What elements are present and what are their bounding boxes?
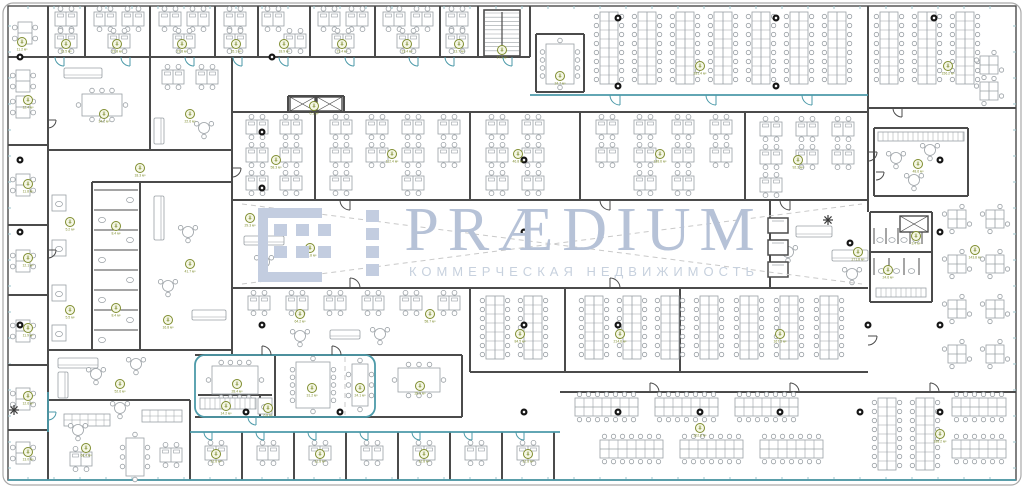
bench-desk-row (814, 296, 844, 359)
bench-desk-row (760, 434, 823, 464)
door-arc (868, 336, 877, 345)
fixture (52, 240, 66, 256)
bench-desk-row (579, 296, 609, 359)
room-marker: 18.3 м² (134, 164, 146, 178)
door-arc (233, 57, 242, 66)
desk-cluster (55, 6, 77, 31)
desk-cluster (486, 114, 508, 139)
room-area-label: 12.8 м² (210, 460, 222, 464)
room-area-label: 24.1 м² (354, 394, 366, 398)
desk-cluster (324, 290, 346, 315)
desk-cluster (246, 114, 268, 139)
room-area-label: 12.8 м² (522, 460, 534, 464)
bench-desk-row (734, 296, 764, 359)
desk-cluster (248, 290, 270, 315)
sofa (64, 68, 102, 78)
desk-cluster (596, 142, 618, 167)
desk-cluster (980, 204, 1009, 233)
round-table (68, 423, 87, 440)
round-table (158, 279, 177, 296)
room-marker: 281.4 м² (694, 62, 708, 76)
room-area-label: 11.9 м² (23, 334, 35, 338)
room-area-label: 112.4 м² (386, 160, 400, 164)
bench-desk-row (632, 12, 662, 84)
desk-cluster (832, 144, 854, 169)
floorplan-svg: 11.2 м²13.5 м²23.8 м²23.8 м²15.1 м²18.9 … (0, 0, 1024, 488)
bench-desk-row (655, 392, 718, 422)
desk-cluster (465, 440, 487, 465)
floorplan-screenshot: 11.2 м²13.5 м²23.8 м²23.8 м²15.1 м²18.9 … (0, 0, 1024, 488)
room-area-label: 8.4 м² (111, 314, 121, 318)
bench-desk-row (708, 12, 738, 84)
fixture (52, 195, 66, 211)
desk-cluster (318, 6, 340, 31)
desk-cluster (832, 116, 854, 141)
room-area-label: 6.8 м² (263, 414, 273, 418)
desk-cluster (10, 70, 35, 92)
desk-cluster (383, 6, 405, 31)
room-area-label: 28.4 м² (231, 390, 243, 394)
desk-cluster (257, 440, 279, 465)
room-area-label: 13.7 м² (453, 50, 465, 54)
room-marker: 6.1 м² (309, 102, 319, 116)
bench-desk-row (480, 296, 510, 359)
room-marker: 5.2 м² (65, 218, 75, 232)
door-arc (802, 95, 812, 105)
desk-cluster (942, 339, 971, 368)
door-arc (256, 432, 264, 440)
room-area-label: 41.7 м² (184, 270, 196, 274)
room-marker: 29.3 м² (244, 214, 256, 228)
room-area-label: 23.8 м² (111, 50, 123, 54)
desk-cluster (366, 114, 388, 139)
door-arc (930, 383, 939, 392)
room-area-label: 18.3 м² (134, 174, 146, 178)
desk-cluster (438, 114, 460, 139)
room-marker: 52.6 м² (114, 380, 126, 394)
door-arc (308, 432, 316, 440)
desk-cluster (980, 249, 1009, 278)
room-area-label: 24.7 м² (554, 82, 566, 86)
door-arc (279, 57, 288, 66)
door-arc (790, 383, 799, 392)
fixture (52, 285, 66, 301)
desk-cluster (187, 6, 209, 31)
round-table (842, 267, 861, 284)
room-area-label: 28.9 м² (414, 392, 426, 396)
room-area-label: 18.9 м² (278, 50, 290, 54)
sofa (330, 330, 360, 339)
door-arc (780, 200, 790, 210)
door-arc (332, 346, 341, 355)
sofa (154, 196, 164, 240)
bench-desk-row (735, 392, 798, 422)
room-area-label: 13.5 м² (60, 50, 72, 54)
sofa (154, 118, 164, 144)
bench-desk-row (872, 398, 902, 470)
room-area-label: 12.8 м² (314, 460, 326, 464)
round-table (194, 121, 213, 138)
sofa (58, 372, 68, 398)
room-area-label: 23.4 м² (401, 50, 413, 54)
door-arc (340, 200, 350, 210)
door-arc (248, 417, 256, 425)
desk-cluster (634, 114, 656, 139)
room-area-label: 16.8 м² (162, 326, 174, 330)
room-area-label: 12.6 м² (22, 402, 34, 406)
desk-cluster (596, 114, 618, 139)
desk-cluster (280, 114, 302, 139)
door-arc (893, 108, 902, 117)
room-area-label: 48.6 м² (912, 170, 924, 174)
room-marker: 24.6 м² (882, 266, 894, 280)
desk-cluster (366, 142, 388, 167)
desk-cluster (672, 142, 694, 167)
round-table (86, 367, 105, 384)
desk-cluster (122, 6, 144, 31)
bench-desk-row (952, 434, 1006, 464)
sofa (58, 358, 98, 368)
room-area-label: 34.2 м² (98, 120, 110, 124)
desk-cluster (402, 114, 424, 139)
room-area-label: 84.5 м² (514, 340, 526, 344)
round-table (290, 329, 309, 346)
desk-cluster (224, 6, 246, 31)
room-area-label: 156.2 м² (942, 72, 956, 76)
wc-stalls (94, 190, 138, 343)
round-table (886, 151, 905, 168)
desk-cluster (760, 116, 782, 141)
counter (878, 132, 964, 141)
round-table (178, 225, 197, 242)
room-area-label: 271.8 м² (852, 258, 866, 262)
room-area-label: 281.4 м² (694, 72, 708, 76)
bench-desk-row (575, 392, 638, 422)
door-arc (464, 432, 472, 440)
room-marker: 112.4 м² (386, 150, 400, 164)
watermark: PRÆDIUM КОММЕРЧЕСКАЯ НЕДВИЖИМОСТЬ (258, 196, 764, 282)
bench-desk-row (594, 12, 624, 84)
desk-cluster (634, 142, 656, 167)
bench-desk-row (822, 12, 852, 84)
desk-cluster (486, 142, 508, 167)
desk-cluster (280, 170, 302, 195)
sofa (192, 310, 226, 320)
room-area-label: 6.1 м² (309, 112, 319, 116)
room-area-label: 22.6 м² (184, 120, 196, 124)
bench-desk-row (694, 296, 724, 359)
sofa (796, 226, 832, 237)
plant (9, 405, 19, 415)
round-table (110, 401, 129, 418)
desk-cluster (796, 116, 818, 141)
desk-cluster (522, 170, 544, 195)
desk-cluster (402, 170, 424, 195)
room-area-label: 188.2 м² (934, 440, 948, 444)
room-marker: 22.6 м² (184, 110, 196, 124)
room-area-label: 11.8 м² (23, 190, 35, 194)
room-area-label: 52.6 м² (114, 390, 126, 394)
room-marker: 6.8 м² (263, 404, 273, 418)
phone-booth (768, 218, 788, 233)
bench-desk-row (746, 12, 776, 84)
plant (823, 215, 833, 225)
room-marker: 8.4 м² (111, 222, 121, 236)
room-area-label: 302.6 м² (694, 434, 708, 438)
desk-cluster (486, 170, 508, 195)
room-area-label: 5.5 м² (65, 316, 75, 320)
room-area-label: 14.2 м² (220, 412, 232, 416)
room-area-label: 46.8 м² (512, 160, 524, 164)
door-arc (48, 120, 56, 128)
elevator-shaft (317, 97, 342, 111)
door-arc (706, 95, 716, 105)
desk-cluster (94, 6, 116, 31)
door-arc (412, 432, 420, 440)
desk-cluster (980, 294, 1009, 323)
room-area-label: 5.2 м² (65, 228, 75, 232)
elevator-shaft (900, 216, 928, 232)
door-arc (350, 278, 360, 288)
phone-booth (768, 240, 788, 255)
room-area-label: 167.3 м² (774, 340, 788, 344)
watermark-title: PRÆDIUM (404, 196, 763, 264)
room-area-label: 12.8 м² (418, 460, 430, 464)
door-arc (868, 152, 877, 161)
door-arc (360, 432, 368, 440)
desk-cluster (196, 64, 218, 89)
door-arc (121, 57, 130, 66)
desk-cluster (160, 442, 182, 467)
room-area-label: 143.8 м² (969, 256, 983, 260)
room-area-label: 64.2 м² (294, 320, 306, 324)
desk-cluster (446, 6, 468, 31)
bench-desk-row (680, 434, 743, 464)
room-marker: 68.4 м² (80, 444, 92, 458)
bench-desk-row (600, 434, 663, 464)
desk-cluster (438, 290, 460, 315)
desk-cluster (330, 142, 352, 167)
door-arc (55, 57, 64, 66)
desk-cluster (760, 172, 782, 197)
desk-cluster (162, 64, 184, 89)
wc-stalls (874, 258, 919, 275)
room-marker: 58.7 м² (424, 310, 436, 324)
room-marker: 3.4 м² (911, 232, 921, 246)
room-area-label: 24.6 м² (882, 276, 894, 280)
counter (876, 288, 926, 297)
desk-cluster (710, 114, 732, 139)
room-area-label: 8.4 м² (111, 232, 121, 236)
desk-cluster (402, 142, 424, 167)
door-arc (650, 383, 659, 392)
door-arc (409, 57, 418, 66)
desk-cluster (280, 142, 302, 167)
door-arc (610, 95, 620, 105)
phone-booth (768, 262, 788, 277)
room-marker: 41.7 м² (184, 260, 196, 274)
bench-desk-row (912, 12, 942, 84)
bench-desk-row (950, 12, 980, 84)
desk-cluster (942, 204, 971, 233)
room-area-label: 12.1 м² (22, 264, 34, 268)
desk-cluster (672, 170, 694, 195)
desk-cluster (400, 290, 422, 315)
desk-cluster (246, 170, 268, 195)
room-area-label: 138.6 м² (654, 160, 668, 164)
room-marker: 8.4 м² (111, 304, 121, 318)
bench-desk-row (952, 392, 1006, 422)
room-marker: 302.6 м² (694, 424, 708, 438)
room-area-label: 58.7 м² (424, 320, 436, 324)
room-marker: 143.8 м² (969, 246, 983, 260)
door-arc (876, 172, 884, 180)
round-table (904, 173, 923, 190)
room-area-label: 68.4 м² (80, 454, 92, 458)
room-marker: 48.6 м² (912, 160, 924, 174)
door-arc (516, 432, 524, 440)
desk-cluster (522, 142, 544, 167)
room-area-label: 214.6 м² (614, 340, 628, 344)
bench-desk-row (874, 12, 904, 84)
room-area-label: 15.1 м² (230, 50, 242, 54)
room-area-label: 23.8 м² (176, 50, 188, 54)
bench-desk-row (617, 296, 647, 359)
room-area-label: 31.2 м² (306, 394, 318, 398)
desk-cluster (362, 290, 384, 315)
door-arc (232, 168, 241, 177)
desk-cluster (942, 294, 971, 323)
door-arc (204, 432, 212, 440)
room-area-label: 23.4 м² (336, 50, 348, 54)
cabinet (142, 410, 182, 422)
desk-cluster (710, 142, 732, 167)
desk-cluster (522, 114, 544, 139)
desk-cluster (760, 144, 782, 169)
desk-cluster (438, 142, 460, 167)
fixture (52, 325, 66, 341)
round-table (370, 327, 389, 344)
desk-cluster (246, 142, 268, 167)
room-area-label: 11.2 м² (17, 48, 29, 52)
desk-cluster (330, 170, 352, 195)
room-area-label: 17.9 м² (496, 56, 508, 60)
room-area-label: 58.3 м² (270, 166, 282, 170)
room-area-label: 3.4 м² (911, 242, 921, 246)
desk-cluster (346, 6, 368, 31)
desk-cluster (262, 6, 284, 31)
desk-cluster (634, 170, 656, 195)
door-arc (185, 57, 194, 66)
door-arc (48, 412, 56, 420)
room-marker: 188.2 м² (934, 430, 948, 444)
room-area-label: 29.3 м² (244, 224, 256, 228)
room-area-label: 92.3 м² (792, 166, 804, 170)
desk-cluster (411, 6, 433, 31)
meeting-table (120, 432, 150, 482)
round-table (920, 143, 939, 160)
bench-desk-row (784, 12, 814, 84)
desk-cluster (672, 114, 694, 139)
door-arc (610, 278, 620, 288)
door-arc (445, 57, 454, 66)
bench-desk-row (774, 296, 804, 359)
round-table (126, 357, 145, 374)
desk-cluster (361, 440, 383, 465)
door-arc (262, 346, 271, 355)
room-marker: 16.8 м² (162, 316, 174, 330)
desk-cluster (330, 114, 352, 139)
room-area-label: 13.0 м² (22, 458, 34, 462)
door-arc (345, 57, 354, 66)
desk-cluster (980, 339, 1009, 368)
desk-cluster (159, 6, 181, 31)
desk-cluster (942, 249, 971, 278)
room-area-label: 12.4 м² (22, 106, 34, 110)
room-marker: 5.5 м² (65, 306, 75, 320)
watermark-subtitle: КОММЕРЧЕСКАЯ НЕДВИЖИМОСТЬ (409, 264, 759, 279)
